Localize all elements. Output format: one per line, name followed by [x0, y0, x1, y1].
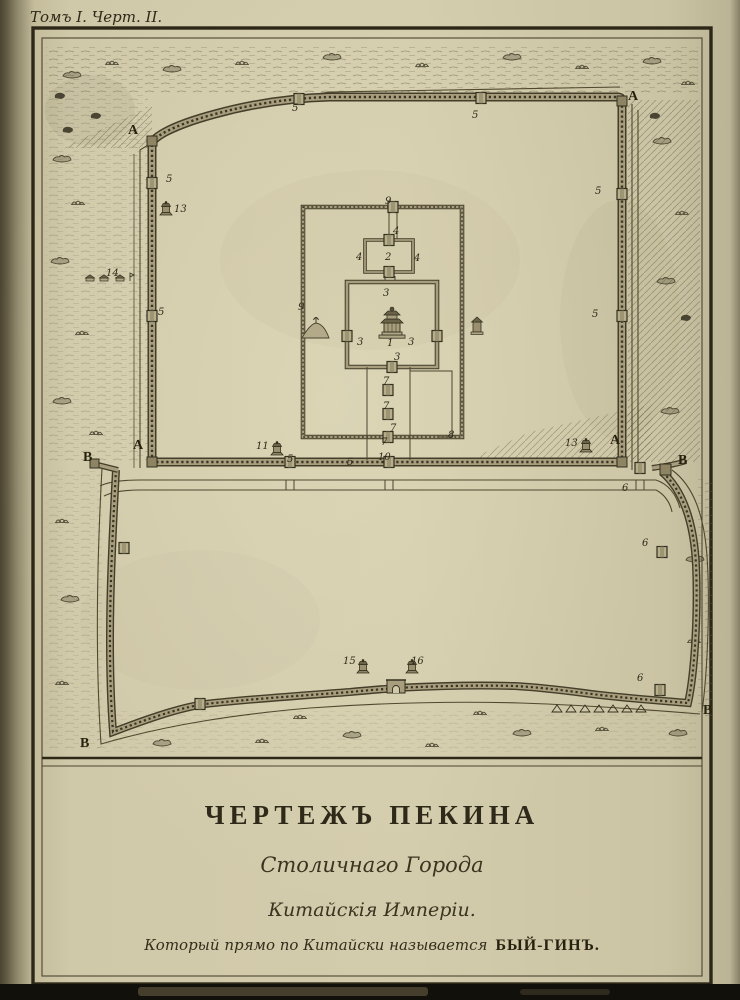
gate-number: 13: [565, 438, 578, 449]
gate-number: 5: [292, 103, 298, 114]
gate-number: 5: [595, 186, 601, 197]
gate-number: 3: [408, 337, 414, 348]
scanned-map-page: A A A A В В В В 5 5 5 13 5 14 5 5 9 4 2 …: [0, 0, 740, 1000]
gate-number: 5: [287, 454, 293, 465]
right-edge-shadow: [730, 0, 740, 1000]
gate-number: 14: [106, 268, 119, 279]
page-bottom-edge: [0, 984, 740, 1000]
gate-number: 16: [411, 656, 424, 667]
south-corridor: [367, 367, 452, 460]
corner-letter: A: [628, 89, 639, 104]
map-subtitle-1: Столичнаго Города: [260, 853, 483, 877]
gate-number: 3: [383, 288, 389, 299]
corner-letter: В: [80, 736, 89, 751]
gate-number: 7: [383, 376, 390, 387]
corner-letter: В: [703, 703, 712, 718]
map-subtitle-3: Который прямо по Китайски называетсяБЫЙ-…: [143, 935, 600, 954]
gate-number: 4: [413, 253, 420, 264]
corner-letter: В: [83, 450, 92, 465]
engraved-plate: A A A A В В В В 5 5 5 13 5 14 5 5 9 4 2 …: [0, 0, 740, 1000]
gate-number: 6: [622, 483, 629, 494]
gate-number: 6: [642, 538, 649, 549]
gate-number: 3: [357, 337, 363, 348]
gate-number: 15: [343, 656, 356, 667]
gate-number: 13: [174, 204, 187, 215]
map-title: ЧЕРТЕЖЪ ПЕКИНА: [205, 800, 540, 830]
moat-bridges: [286, 480, 644, 490]
subtitle-3-script: Который прямо по Китайски называется: [143, 936, 487, 954]
gate-number: 3: [394, 352, 400, 363]
gate-number: 2: [384, 252, 391, 263]
gate-number: 6: [637, 673, 644, 684]
title-block: ЧЕРТЕЖЪ ПЕКИНА Столичнаго Города Китайск…: [143, 800, 600, 954]
book-gutter-shadow: [0, 0, 34, 1000]
south-arch-gate: [386, 680, 406, 693]
gate-number: 5: [166, 174, 172, 185]
corner-letter: A: [133, 438, 144, 453]
gate-number: 5: [472, 110, 478, 121]
gate-number: 5: [347, 457, 353, 468]
gate-number: 5: [592, 309, 598, 320]
gate-number: 7: [390, 423, 397, 434]
plate-header: Томъ I. Черт. II.: [30, 8, 162, 26]
gate-number: 7: [381, 437, 388, 448]
subtitle-3-caps: БЫЙ-ГИНЪ.: [495, 935, 599, 954]
corner-letter: В: [678, 453, 687, 468]
gate-number: 10: [378, 452, 391, 463]
corner-letter: A: [610, 433, 621, 448]
corner-letter: A: [128, 123, 139, 138]
gate-number: 7: [383, 401, 390, 412]
gate-number: 5: [158, 307, 164, 318]
gate-number: 9: [385, 196, 392, 207]
gate-number: 8: [448, 430, 454, 441]
gate-number: 9: [298, 302, 305, 313]
gate-number: 4: [392, 226, 399, 237]
gate-number: 1: [387, 338, 393, 349]
gate-number: 4: [355, 252, 362, 263]
gate-number: 11: [256, 441, 269, 452]
map-subtitle-2: Китайскія Имперіи.: [267, 899, 476, 921]
